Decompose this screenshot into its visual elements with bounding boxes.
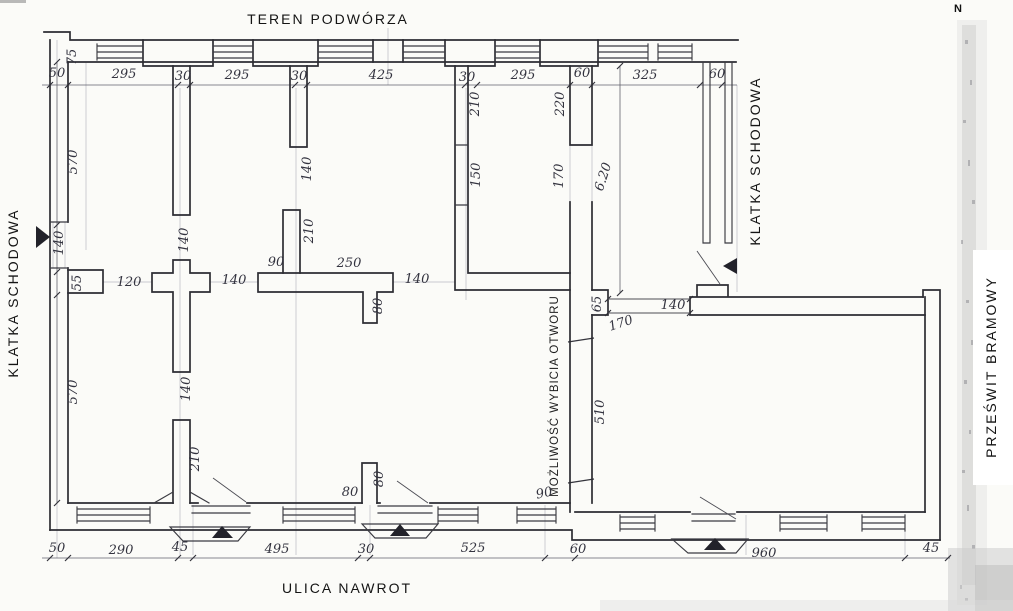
scanned-floor-plan: TEREN PODWÓRZAULICA NAWROTKLATKA SCHODOW… <box>0 0 1013 611</box>
dimension-label: 295 <box>111 67 137 82</box>
label-przeswit-bramowy: PRZEŚWIT BRAMOWY <box>982 276 999 458</box>
scan-artifact <box>0 0 1013 611</box>
dimension-label: 510 <box>593 400 608 425</box>
dimension-label: 210 <box>302 219 317 245</box>
dimension-label: 30 <box>291 69 308 84</box>
dimension-label: 220 <box>553 92 568 118</box>
exterior-walls <box>44 32 940 540</box>
dimension-lines <box>42 59 951 561</box>
dimension-label: 120 <box>117 275 142 290</box>
entry-arrow-icon <box>212 526 233 538</box>
dimension-label: 6.20 <box>592 161 615 193</box>
dimension-label: 140 <box>177 228 192 253</box>
dimension-label: 140 <box>179 377 194 402</box>
dimension-label: 295 <box>510 68 536 83</box>
dimension-label: 140 <box>300 157 315 182</box>
dimension-label: 60 <box>574 66 591 81</box>
label-klatka-schodowa-right: KLATKA SCHODOWA <box>747 76 763 245</box>
dimension-label: 150 <box>469 163 484 188</box>
door-arrow-icon <box>36 226 50 248</box>
label-ulica-nawrot: ULICA NAWROT <box>282 580 412 596</box>
dimension-label: 140 <box>222 273 247 288</box>
dimension-label: 295 <box>224 68 250 83</box>
label-klatka-schodowa-left: KLATKA SCHODOWA <box>5 208 21 377</box>
dimension-label: 90 <box>535 485 554 503</box>
dimension-label: 495 <box>264 542 290 557</box>
dimension-label: 45 <box>171 540 189 555</box>
dimension-label: 65 <box>590 296 605 313</box>
dimension-label: 60 <box>570 542 587 557</box>
north-indicator: N <box>954 3 962 15</box>
dimension-labels: 7550295302953042530295603256057014055570… <box>49 49 940 561</box>
label-teren-podworza: TEREN PODWÓRZA <box>247 11 409 27</box>
dimension-label: 210 <box>188 447 203 473</box>
dimension-label: 80 <box>372 471 387 488</box>
dimension-label: 80 <box>371 298 386 315</box>
dimension-label: 570 <box>66 380 81 405</box>
dimension-label: 60 <box>709 67 726 82</box>
dimension-label: 210 <box>468 92 483 118</box>
dimension-label: 960 <box>752 546 777 561</box>
dimension-label: 50 <box>49 66 66 81</box>
dimension-label: 30 <box>358 542 375 557</box>
label-mozliwosc-wybicia-otworu: MOŻLIWOŚĆ WYBICIA OTWORU <box>548 295 561 497</box>
dimension-label: 290 <box>108 543 134 558</box>
dimension-label: 170 <box>552 164 567 189</box>
dimension-label: 570 <box>66 150 81 175</box>
dimension-label: 525 <box>461 541 486 556</box>
dimension-label: 50 <box>49 541 66 556</box>
dimension-label: 140 <box>52 231 67 256</box>
dimension-label: 425 <box>368 68 394 83</box>
dimension-label: 250 <box>336 256 362 271</box>
dimension-label: 30 <box>175 69 192 84</box>
dimension-label: 140 <box>661 298 686 313</box>
door-arrow-icon <box>723 258 737 274</box>
dimension-label: 325 <box>633 68 658 83</box>
area-labels: TEREN PODWÓRZAULICA NAWROTKLATKA SCHODOW… <box>5 3 999 596</box>
dimension-label: 90 <box>268 255 285 270</box>
entry-doors <box>36 226 748 553</box>
dimension-label: 140 <box>405 272 430 287</box>
floor-plan-svg: TEREN PODWÓRZAULICA NAWROTKLATKA SCHODOW… <box>0 0 1013 611</box>
dimension-label: 75 <box>65 49 80 66</box>
dimension-label: 80 <box>342 485 359 500</box>
dimension-label: 170 <box>607 313 635 335</box>
dimension-label: 55 <box>70 275 85 292</box>
dimension-label: 30 <box>459 70 476 85</box>
dimension-label: 45 <box>922 541 940 556</box>
